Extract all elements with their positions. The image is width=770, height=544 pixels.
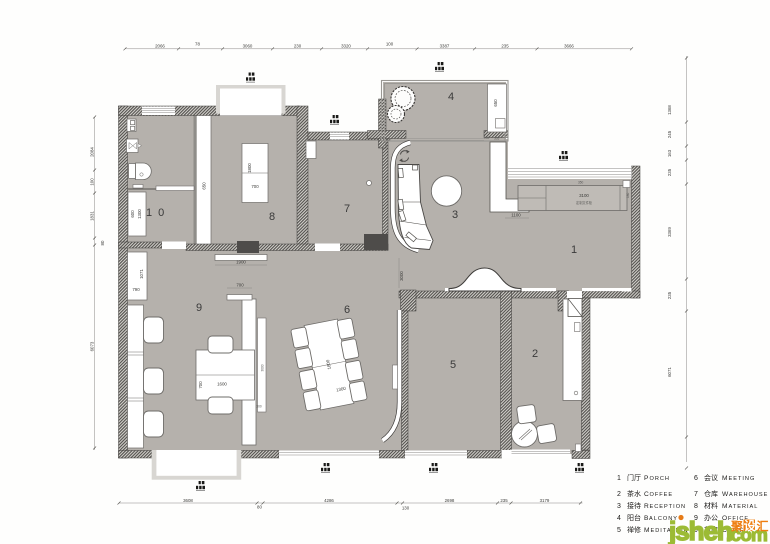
svg-text:1: 1 bbox=[571, 244, 579, 256]
svg-text:OFFEE: OFFEE bbox=[650, 492, 674, 498]
svg-text:80: 80 bbox=[257, 505, 262, 510]
svg-text:3387: 3387 bbox=[440, 44, 450, 49]
svg-text:245: 245 bbox=[667, 130, 672, 138]
svg-text:3060: 3060 bbox=[243, 44, 253, 49]
svg-text:3179: 3179 bbox=[540, 498, 550, 503]
svg-text:163: 163 bbox=[667, 149, 672, 157]
svg-text:2: 2 bbox=[532, 348, 540, 360]
svg-text:650: 650 bbox=[202, 182, 207, 190]
svg-text:聚: 聚 bbox=[730, 520, 744, 534]
svg-text:ATERIAL: ATERIAL bbox=[729, 504, 759, 510]
svg-text:会议: 会议 bbox=[704, 473, 718, 482]
svg-text:350: 350 bbox=[578, 181, 584, 185]
svg-text:茶水: 茶水 bbox=[627, 489, 641, 498]
svg-text:4: 4 bbox=[448, 91, 456, 103]
svg-text:6073: 6073 bbox=[90, 341, 95, 351]
svg-text:材料: 材料 bbox=[704, 501, 718, 510]
svg-text:80: 80 bbox=[100, 240, 105, 245]
svg-text:790: 790 bbox=[132, 287, 140, 292]
svg-text:3369: 3369 bbox=[667, 227, 672, 237]
svg-text:7: 7 bbox=[694, 491, 698, 498]
svg-text:5: 5 bbox=[450, 359, 458, 371]
svg-text:305: 305 bbox=[494, 137, 500, 141]
svg-text:100: 100 bbox=[386, 42, 394, 47]
svg-text:3000: 3000 bbox=[261, 364, 265, 371]
svg-text:6: 6 bbox=[344, 304, 352, 316]
svg-text:3000: 3000 bbox=[399, 271, 404, 281]
svg-text:700: 700 bbox=[198, 381, 203, 389]
svg-text:235: 235 bbox=[501, 44, 509, 49]
svg-text:2084: 2084 bbox=[90, 147, 95, 157]
svg-text:3100: 3100 bbox=[579, 193, 589, 198]
svg-text:1300: 1300 bbox=[137, 209, 142, 219]
svg-text:650: 650 bbox=[493, 99, 498, 107]
svg-text:汇: 汇 bbox=[757, 520, 769, 534]
svg-text:7: 7 bbox=[344, 203, 352, 215]
svg-text:3: 3 bbox=[452, 209, 460, 221]
svg-text:180: 180 bbox=[626, 192, 630, 198]
svg-text:1831: 1831 bbox=[90, 211, 95, 221]
svg-text:3608: 3608 bbox=[183, 498, 193, 503]
svg-text:M: M bbox=[722, 475, 728, 482]
svg-text:1600: 1600 bbox=[217, 382, 227, 387]
svg-text:AREHOUSE: AREHOUSE bbox=[729, 492, 768, 498]
svg-text:2698: 2698 bbox=[445, 498, 455, 503]
svg-text:jsheh: jsheh bbox=[668, 516, 732, 544]
svg-text:230: 230 bbox=[294, 44, 302, 49]
svg-text:235: 235 bbox=[667, 291, 672, 299]
svg-text:5: 5 bbox=[617, 527, 621, 534]
svg-text:1 0: 1 0 bbox=[146, 207, 166, 219]
svg-text:2: 2 bbox=[617, 491, 621, 498]
svg-text:阳台: 阳台 bbox=[627, 513, 641, 522]
svg-text:1900: 1900 bbox=[236, 260, 246, 265]
svg-text:ORCH: ORCH bbox=[650, 476, 670, 482]
svg-text:M: M bbox=[644, 527, 650, 534]
svg-text:禅修: 禅修 bbox=[627, 525, 641, 534]
svg-text:6: 6 bbox=[694, 475, 698, 482]
svg-text:78: 78 bbox=[195, 42, 200, 47]
svg-text:EETING: EETING bbox=[729, 476, 756, 482]
svg-text:3: 3 bbox=[617, 503, 621, 510]
svg-text:P: P bbox=[644, 475, 649, 482]
svg-text:3666: 3666 bbox=[564, 44, 574, 49]
svg-text:100: 100 bbox=[484, 136, 490, 140]
svg-text:6071: 6071 bbox=[667, 367, 672, 377]
svg-text:ECEPTION: ECEPTION bbox=[650, 504, 687, 510]
svg-text:W: W bbox=[722, 491, 729, 498]
svg-text:3320: 3320 bbox=[341, 44, 351, 49]
svg-text:600: 600 bbox=[130, 210, 135, 218]
svg-text:1368: 1368 bbox=[667, 105, 672, 115]
svg-text:4: 4 bbox=[617, 515, 621, 522]
svg-text:设: 设 bbox=[744, 518, 757, 533]
svg-text:130: 130 bbox=[402, 506, 410, 511]
svg-text:门厅: 门厅 bbox=[627, 473, 641, 482]
svg-text:1800: 1800 bbox=[247, 163, 252, 173]
svg-text:100: 100 bbox=[90, 178, 95, 186]
svg-text:8: 8 bbox=[694, 503, 698, 510]
svg-text:9: 9 bbox=[196, 302, 204, 314]
svg-text:仓库: 仓库 bbox=[704, 489, 718, 498]
svg-text:4286: 4286 bbox=[324, 498, 334, 503]
svg-text:235: 235 bbox=[667, 168, 672, 176]
svg-text:700: 700 bbox=[251, 184, 259, 189]
svg-text:M: M bbox=[722, 503, 728, 510]
svg-text:2066: 2066 bbox=[155, 44, 165, 49]
svg-text:235: 235 bbox=[500, 498, 508, 503]
svg-text:定制文件柜: 定制文件柜 bbox=[576, 200, 593, 205]
svg-text:8: 8 bbox=[269, 211, 277, 223]
svg-text:接待: 接待 bbox=[627, 501, 641, 510]
svg-text:1: 1 bbox=[617, 475, 621, 482]
svg-text:1100: 1100 bbox=[511, 213, 521, 218]
svg-text:300: 300 bbox=[256, 405, 262, 409]
svg-text:700: 700 bbox=[236, 283, 244, 288]
svg-text:1071: 1071 bbox=[139, 269, 144, 279]
